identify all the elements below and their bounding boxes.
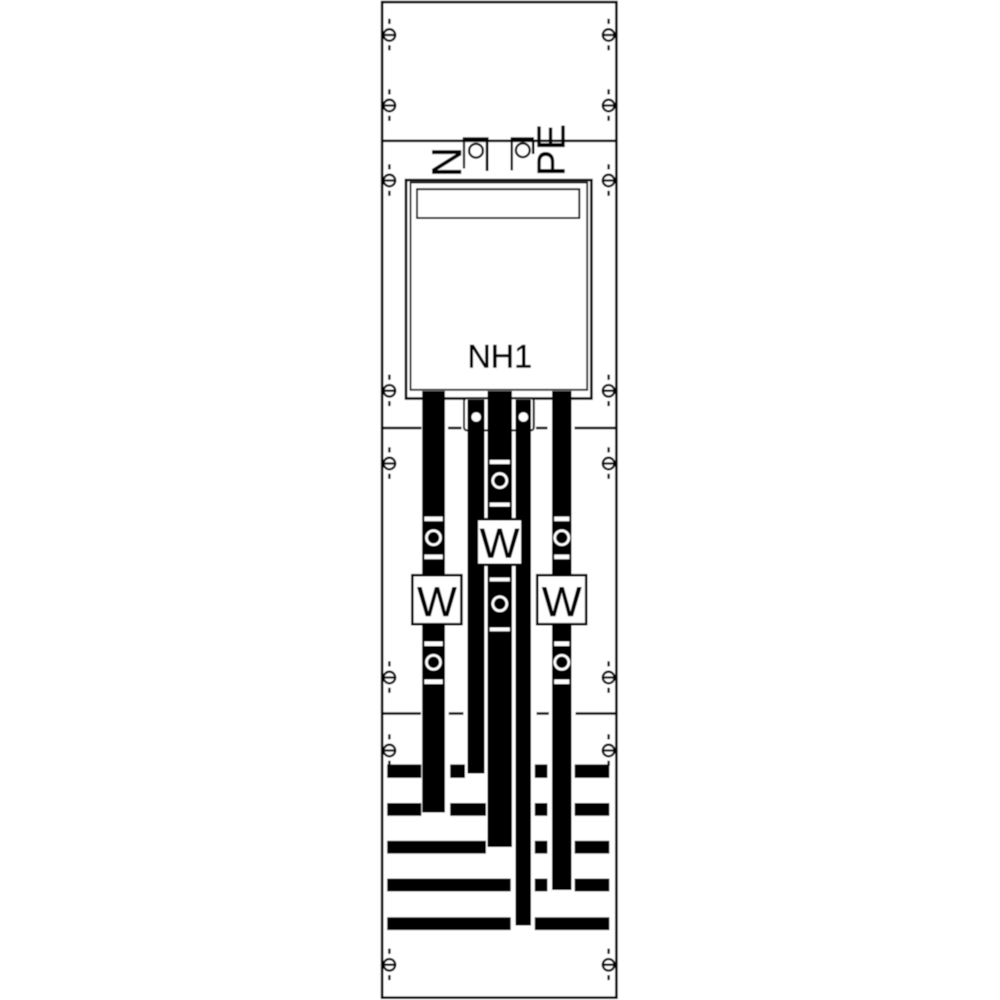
svg-text:NH1: NH1 bbox=[467, 339, 532, 375]
svg-text:W: W bbox=[542, 578, 582, 625]
svg-text:PE: PE bbox=[530, 124, 573, 176]
svg-text:W: W bbox=[417, 578, 457, 625]
svg-text:W: W bbox=[480, 520, 520, 567]
svg-text:N: N bbox=[423, 147, 470, 177]
